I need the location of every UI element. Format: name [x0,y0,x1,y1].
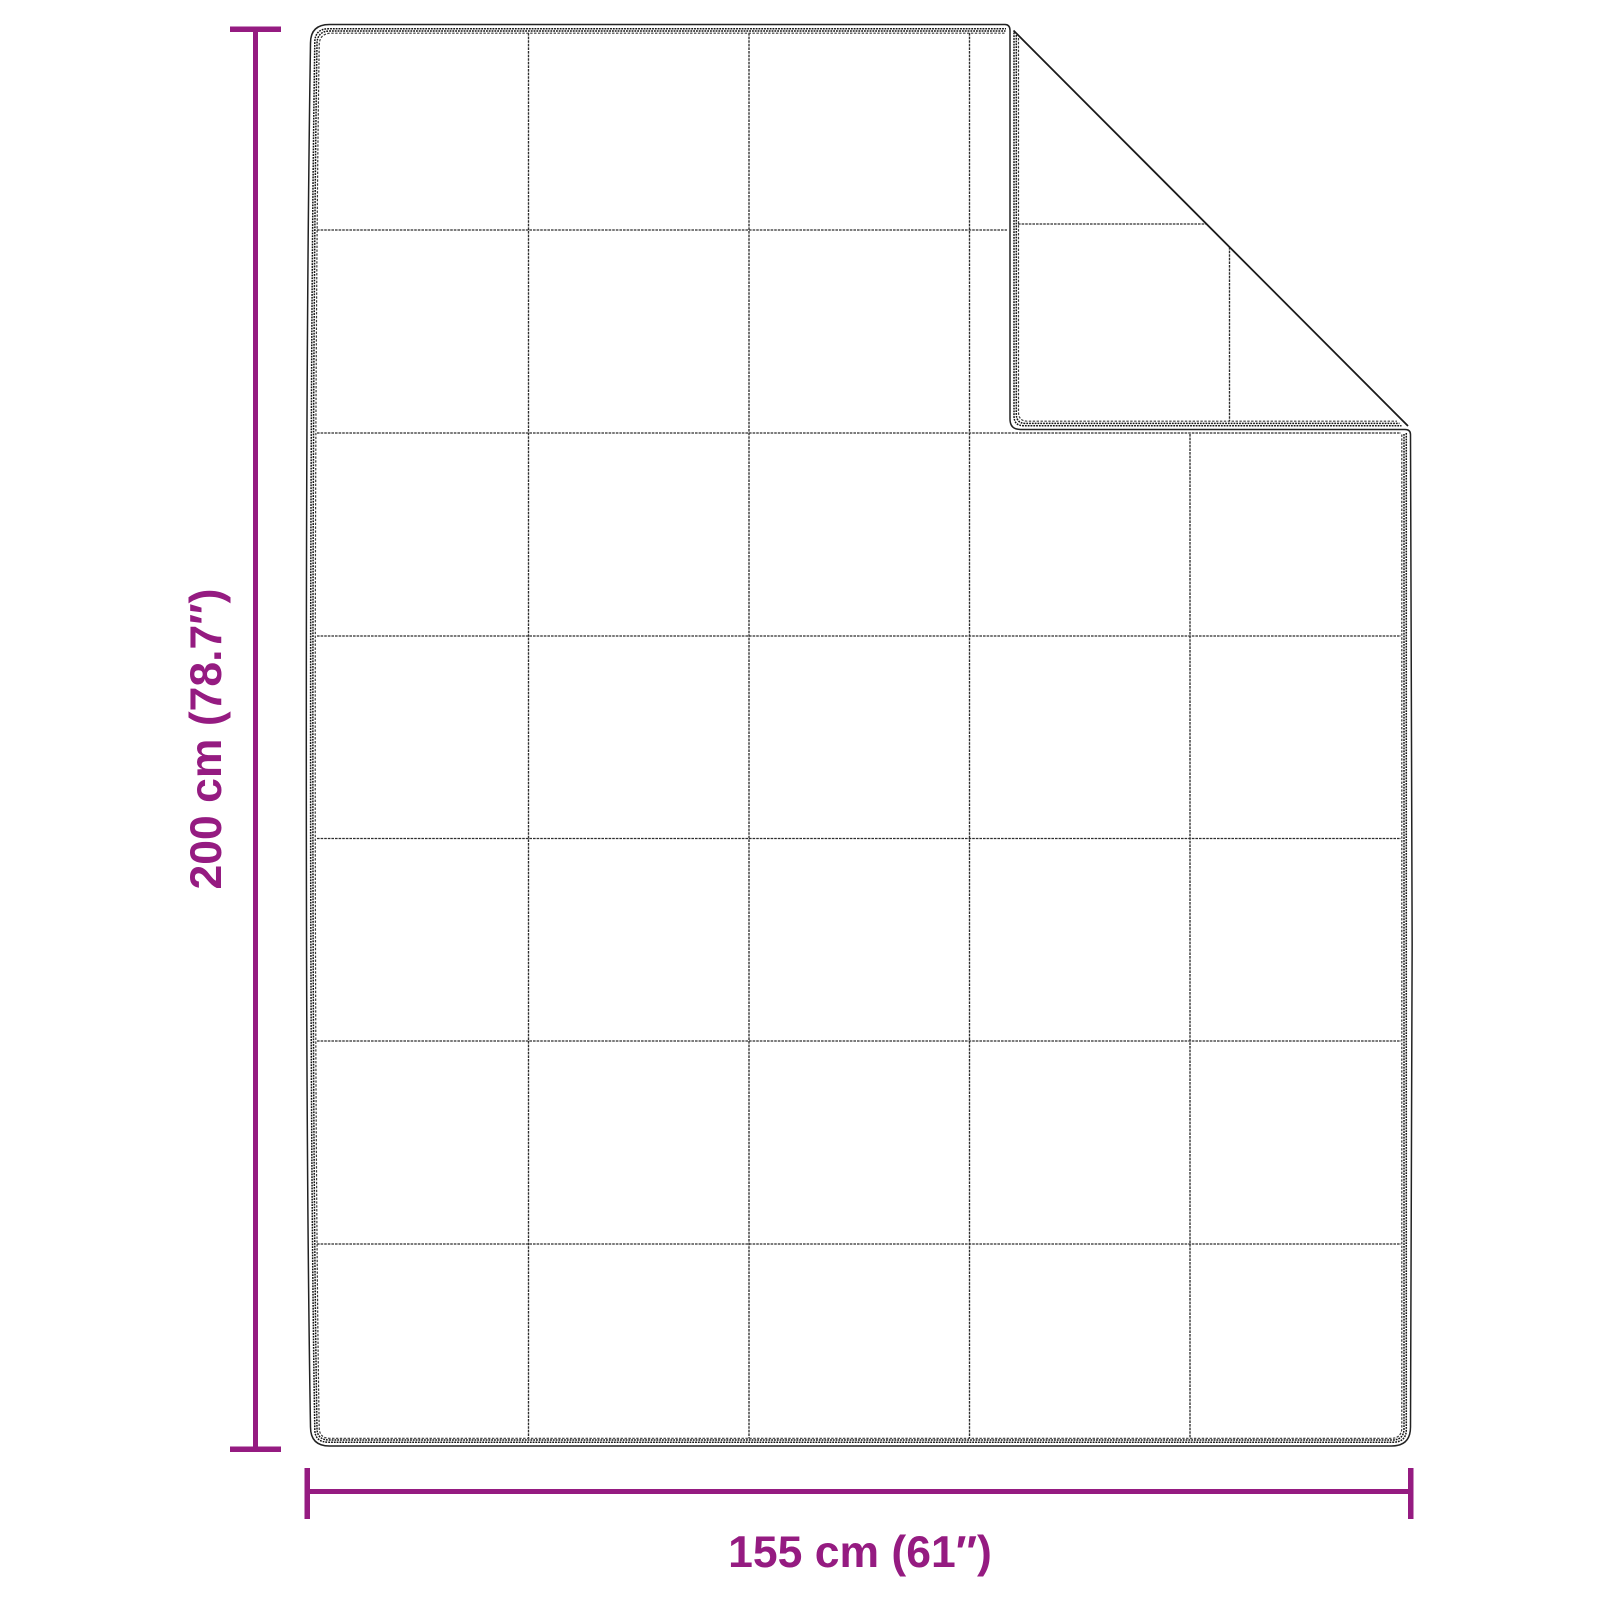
svg-text:155 cm (61″): 155 cm (61″) [728,1528,992,1577]
svg-text:200 cm (78.7″): 200 cm (78.7″) [182,589,231,890]
